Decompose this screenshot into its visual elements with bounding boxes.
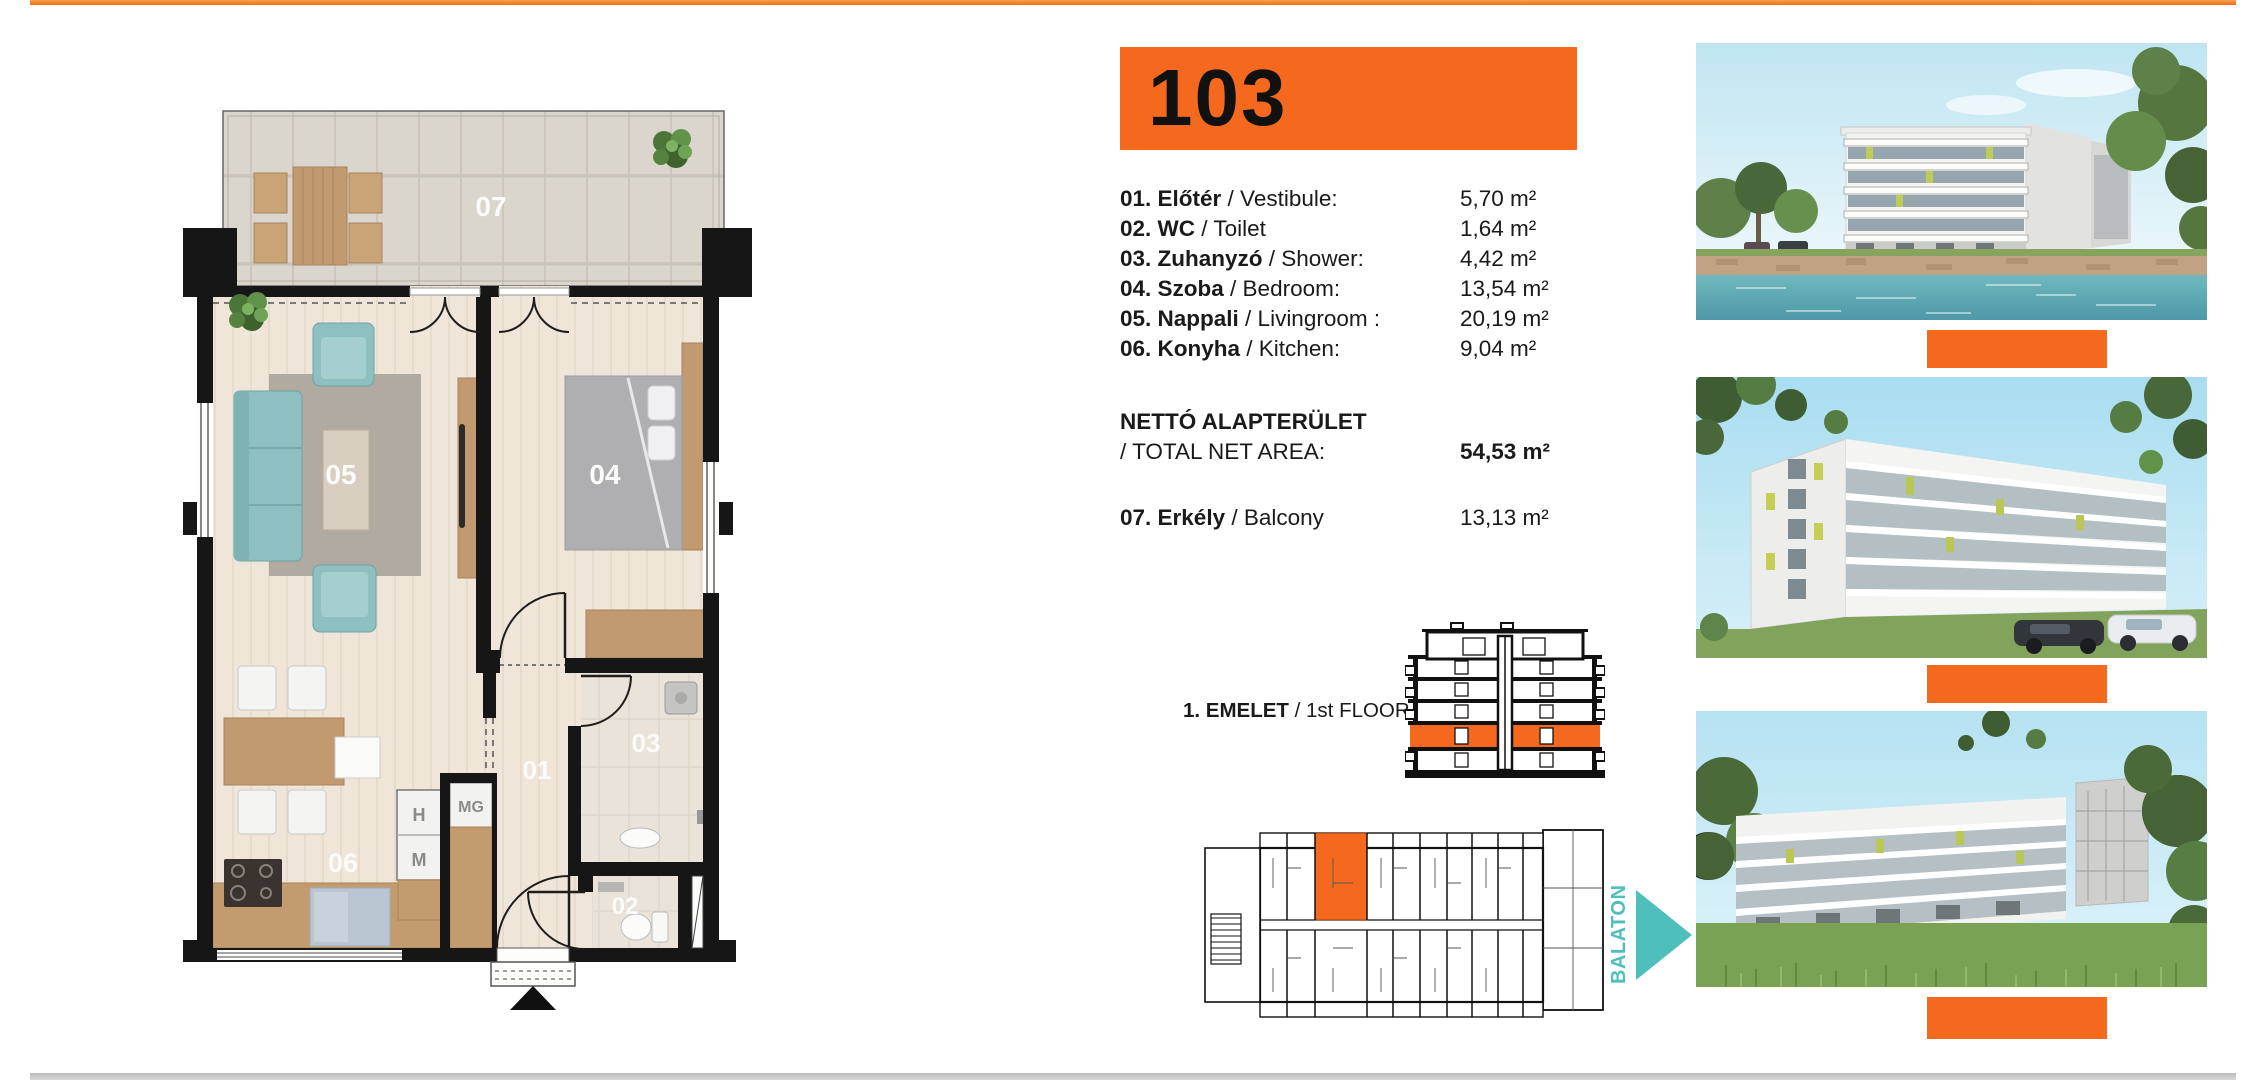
entrance-marker <box>491 948 575 1010</box>
room-row-01: 01. Előtér / Vestibule: 5,70 m² <box>1120 186 1600 216</box>
photo-divider-bar-3 <box>1927 997 2107 1039</box>
bedroom-furniture <box>565 343 706 658</box>
floor-indicator: 1. EMELET / 1st FLOOR <box>1183 699 1410 723</box>
stone-embankment <box>1696 256 2207 275</box>
room-row-06: 06. Konyha / Kitchen: 9,04 m² <box>1120 336 1600 366</box>
cross-section-drawing <box>1405 623 1605 778</box>
room-area-05: 20,19 m² <box>1460 306 1549 332</box>
room-label-06: 06 <box>328 848 358 878</box>
plant-balcony <box>653 129 692 168</box>
room-area-01: 5,70 m² <box>1460 186 1536 212</box>
total-label-en: / TOTAL NET AREA: <box>1120 439 1325 464</box>
room-label-03: 03 <box>632 728 661 758</box>
total-label-hu: NETTÓ ALAPTERÜLET <box>1120 409 1367 434</box>
room-row-02: 02. WC / Toilet 1,64 m² <box>1120 216 1600 246</box>
shore-grass <box>1696 249 2207 257</box>
dishwasher-label: M <box>412 850 427 870</box>
room-row-05: 05. Nappali / Livingroom : 20,19 m² <box>1120 306 1600 336</box>
grass-foreground <box>1696 923 2207 987</box>
room-label-01: 01 <box>523 755 552 785</box>
room-area-06: 9,04 m² <box>1460 336 1536 362</box>
fridge-label: H <box>413 805 426 825</box>
render-photo-lakeside <box>1696 43 2207 320</box>
washer-label: MG <box>458 799 484 816</box>
balaton-arrow-icon <box>1636 890 1692 980</box>
room-area-04: 13,54 m² <box>1460 276 1549 302</box>
total-net-area-block: NETTÓ ALAPTERÜLET / TOTAL NET AREA: 54,5… <box>1120 409 1600 469</box>
bottom-gray-rule <box>30 1073 2236 1080</box>
balcony-area-row: 07. Erkély / Balcony 13,13 m² <box>1120 505 1600 535</box>
room-label-04: 04 <box>589 459 621 490</box>
key-plan-outline <box>1205 830 1603 1017</box>
background-tower <box>2076 777 2148 906</box>
top-accent-rule <box>30 0 2236 5</box>
plant-living-room <box>229 292 268 331</box>
room-area-list: 01. Előtér / Vestibule: 5,70 m² 02. WC /… <box>1120 186 1600 366</box>
room-label-05: 05 <box>325 459 356 490</box>
duct-shaft <box>692 876 703 948</box>
highlighted-unit-103 <box>1315 833 1367 920</box>
lake-water <box>1696 275 2207 320</box>
room-row-03: 03. Zuhanyzó / Shower: 4,42 m² <box>1120 246 1600 276</box>
balaton-direction-label: BALATON <box>1608 888 1634 984</box>
brochure-page: H M MG <box>0 0 2244 1080</box>
photo-divider-bar-2 <box>1927 665 2107 703</box>
building-render <box>1736 797 2066 939</box>
building-key-plan <box>1203 828 1605 1020</box>
unit-number-box: 103 <box>1120 47 1577 150</box>
balcony-area-value: 13,13 m² <box>1460 505 1549 531</box>
building-render <box>1841 123 2131 253</box>
room-label-07: 07 <box>475 191 506 222</box>
room-area-02: 1,64 m² <box>1460 216 1536 242</box>
unit-number: 103 <box>1120 47 1577 148</box>
room-label-02: 02 <box>612 893 639 920</box>
total-value: 54,53 m² <box>1460 439 1550 465</box>
photo-divider-bar-1 <box>1927 330 2107 368</box>
render-photo-garden-facade <box>1696 711 2207 987</box>
render-photo-street-corner <box>1696 377 2207 658</box>
room-row-04: 04. Szoba / Bedroom: 13,54 m² <box>1120 276 1600 306</box>
bush-left <box>1700 613 1728 641</box>
apartment-floorplan: H M MG <box>175 95 755 1020</box>
room-area-03: 4,42 m² <box>1460 246 1536 272</box>
building-cross-section <box>1405 622 1605 782</box>
